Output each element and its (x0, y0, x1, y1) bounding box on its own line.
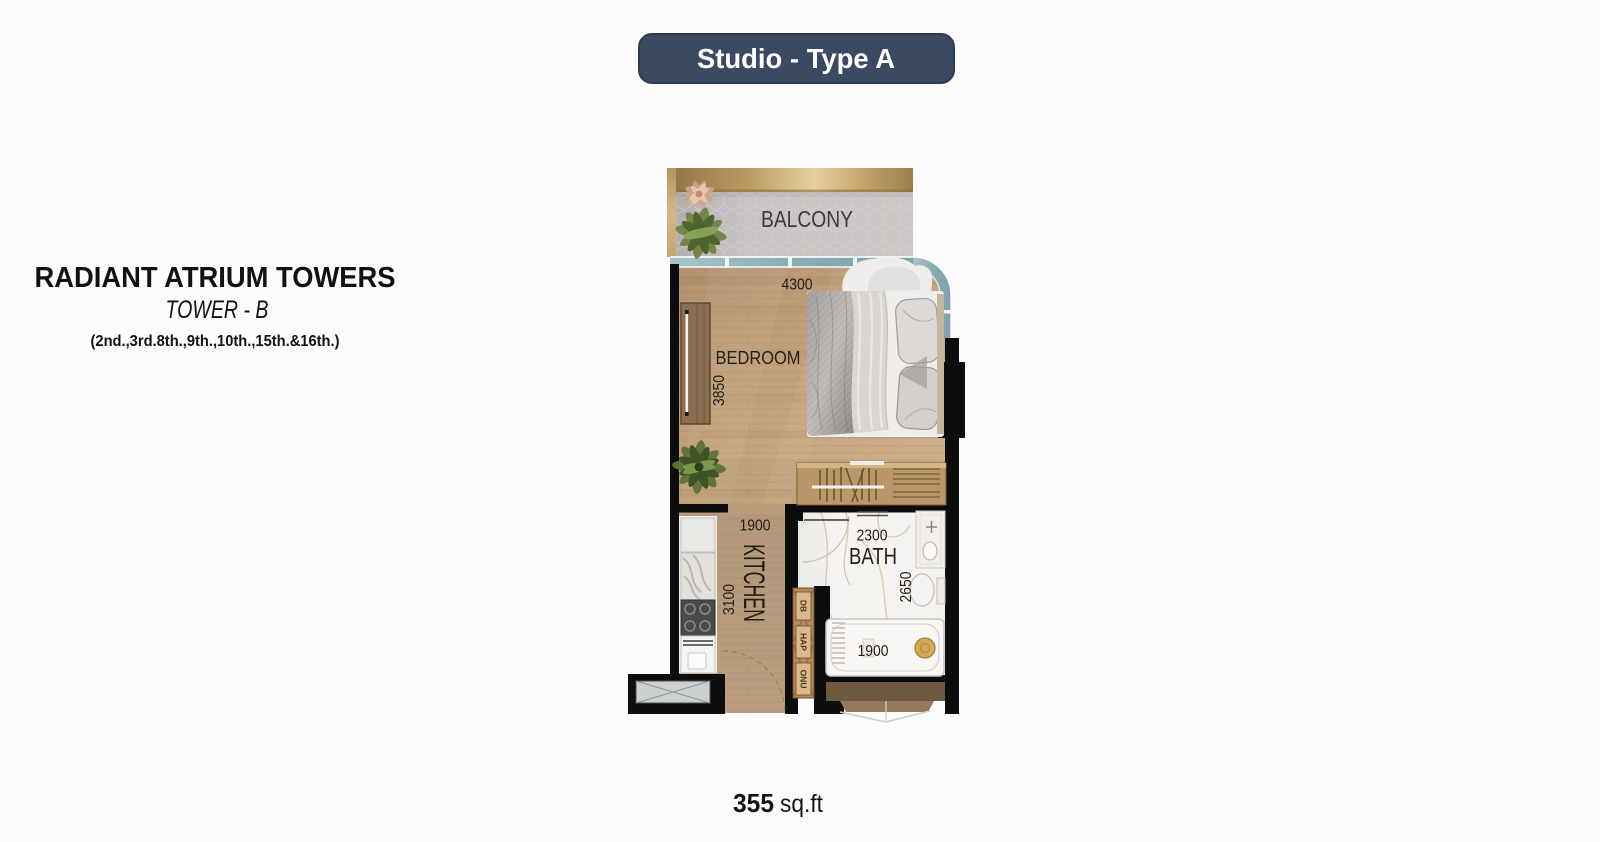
svg-text:Studio - Type A: Studio - Type A (697, 43, 895, 74)
svg-text:1900: 1900 (740, 518, 771, 535)
svg-text:3100: 3100 (721, 584, 738, 615)
svg-text:HAP: HAP (799, 633, 809, 651)
svg-text:3850: 3850 (711, 375, 728, 406)
svg-text:BALCONY: BALCONY (761, 206, 853, 232)
svg-text:RADIANT ATRIUM TOWERS: RADIANT ATRIUM TOWERS (35, 262, 396, 294)
svg-text:KITCHEN: KITCHEN (737, 544, 770, 622)
svg-text:1900: 1900 (858, 643, 889, 660)
svg-text:TOWER - B: TOWER - B (166, 296, 269, 324)
svg-text:ONU: ONU (799, 670, 809, 689)
svg-text:(2nd.,3rd.8th.,9th.,10th.,15th: (2nd.,3rd.8th.,9th.,10th.,15th.&16th.) (91, 333, 340, 350)
svg-text:BATH: BATH (849, 543, 897, 569)
svg-text:BEDROOM: BEDROOM (716, 348, 801, 368)
svg-text:sq.ft: sq.ft (780, 790, 823, 818)
svg-text:2300: 2300 (857, 528, 888, 545)
svg-text:355: 355 (733, 788, 774, 818)
svg-text:4300: 4300 (782, 277, 813, 294)
svg-text:DB: DB (799, 600, 809, 612)
svg-text:2650: 2650 (898, 571, 915, 602)
